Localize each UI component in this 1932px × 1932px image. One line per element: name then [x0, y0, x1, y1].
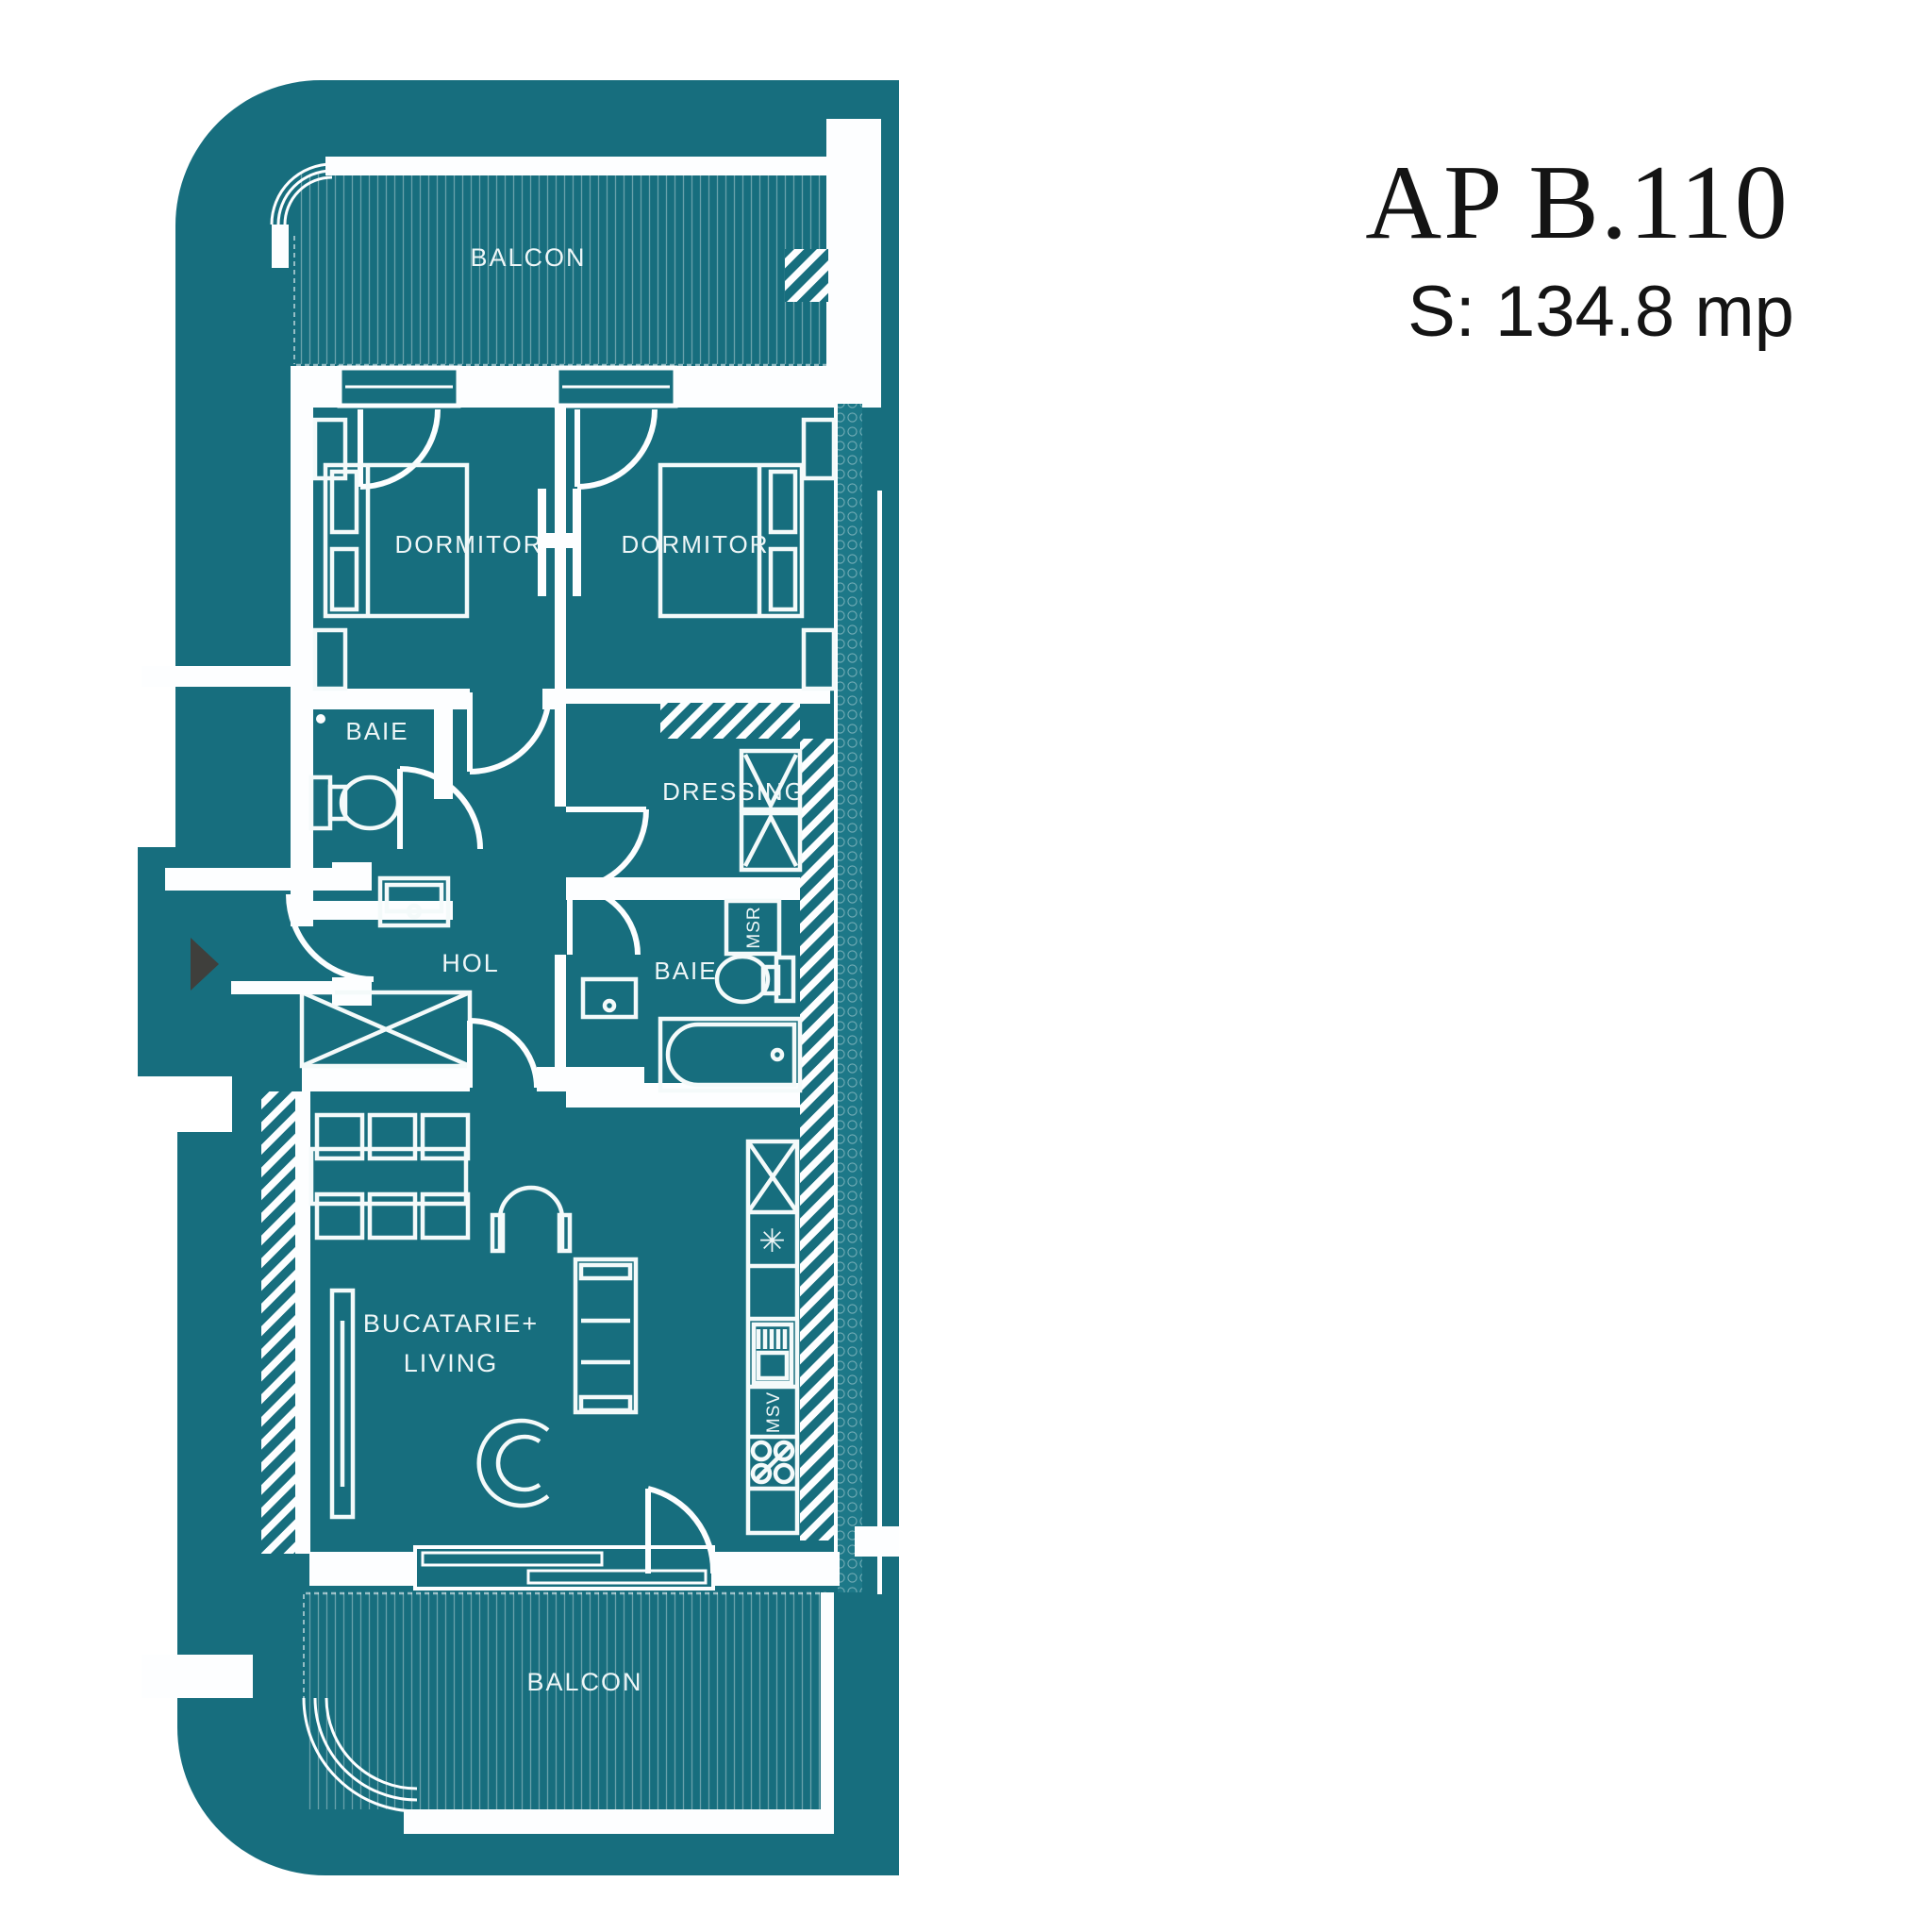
right-edge-notch	[855, 1526, 899, 1557]
entry-door-leaf	[231, 981, 335, 994]
right-wall-line-outer	[877, 491, 882, 1594]
balcony-bottom-deck	[304, 1592, 828, 1809]
apartment-area: S: 134.8 mp	[1407, 272, 1794, 352]
balcony-bottom-right-rail	[821, 1592, 834, 1819]
wall-entry-band	[165, 868, 335, 891]
drain-dot	[316, 714, 325, 724]
balcony-top-right-wall	[826, 119, 881, 375]
washing-machine-label: MSR	[744, 906, 764, 948]
hallway-label: HOL	[441, 949, 500, 977]
balcony-top-pillar-hatch	[785, 249, 828, 302]
balcony-corner-post	[272, 225, 289, 268]
left-structural-hatch	[261, 1091, 295, 1554]
sliding-door	[415, 1547, 713, 1589]
title-block: AP B.110 S: 134.8 mp	[1365, 144, 1794, 352]
floor-plan-page: BALCON	[0, 0, 1932, 1932]
balcony-top-parapet	[325, 157, 830, 175]
apartment-title: AP B.110	[1365, 144, 1790, 261]
wall-bedroom2-bottom	[566, 689, 830, 704]
hood-symbol: ✳	[758, 1224, 787, 1259]
wall-left-exterior	[291, 408, 313, 926]
kitchen-living-label-2: LIVING	[404, 1349, 499, 1377]
wall-hol-bottom-right	[537, 1067, 644, 1091]
right-wall-line-inner	[834, 404, 838, 1555]
bathroom-main-label: BAIE	[654, 957, 717, 985]
floor-plan-svg: BALCON	[0, 0, 1932, 1932]
balcony-bottom-parapet	[404, 1809, 834, 1834]
balcony-top: BALCON	[272, 119, 881, 375]
wall-left-stub	[142, 666, 292, 687]
dishwasher-label: MSV	[764, 1391, 784, 1433]
entry-jamb-top	[332, 862, 372, 891]
right-insulation-band	[838, 404, 862, 1592]
wall-living-left-liner	[295, 1091, 310, 1554]
wall-hol-bottom-left	[302, 1067, 470, 1091]
bedroom-right-label: DORMITOR	[621, 530, 769, 558]
kitchen-living-label-1: BUCATARIE+	[363, 1309, 539, 1338]
bedroom-left-label: DORMITOR	[394, 530, 542, 558]
left-step-block	[142, 1655, 253, 1698]
balcony-top-label: BALCON	[470, 243, 586, 272]
right-structural-hatch	[800, 739, 834, 1541]
wall-bedroom1-bottom	[291, 689, 470, 709]
bathroom-top-label: BAIE	[345, 717, 408, 745]
dressing-top-hatch	[660, 703, 800, 739]
balcony-bottom-label: BALCON	[526, 1668, 642, 1696]
wall-partition-low	[555, 955, 566, 1083]
wall-partition-mid	[555, 689, 566, 807]
